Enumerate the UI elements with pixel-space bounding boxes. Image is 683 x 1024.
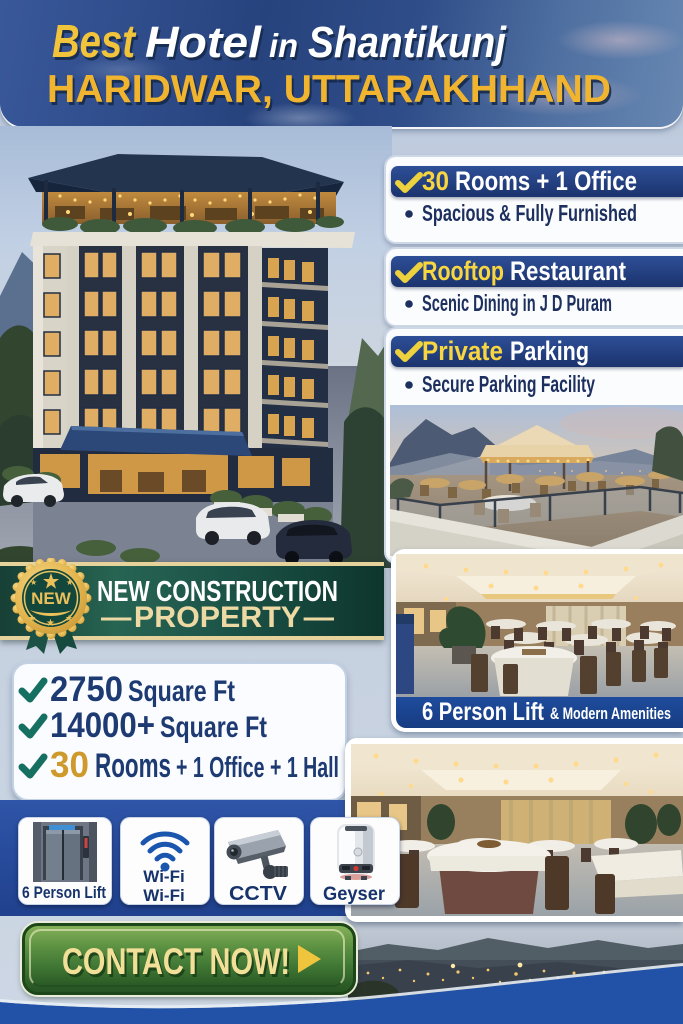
svg-text:★: ★ <box>65 613 73 623</box>
svg-text:★: ★ <box>66 578 73 587</box>
svg-text:NEW: NEW <box>31 589 72 608</box>
svg-text:★: ★ <box>30 578 37 587</box>
svg-text:★: ★ <box>28 613 36 623</box>
svg-text:★: ★ <box>46 618 55 629</box>
